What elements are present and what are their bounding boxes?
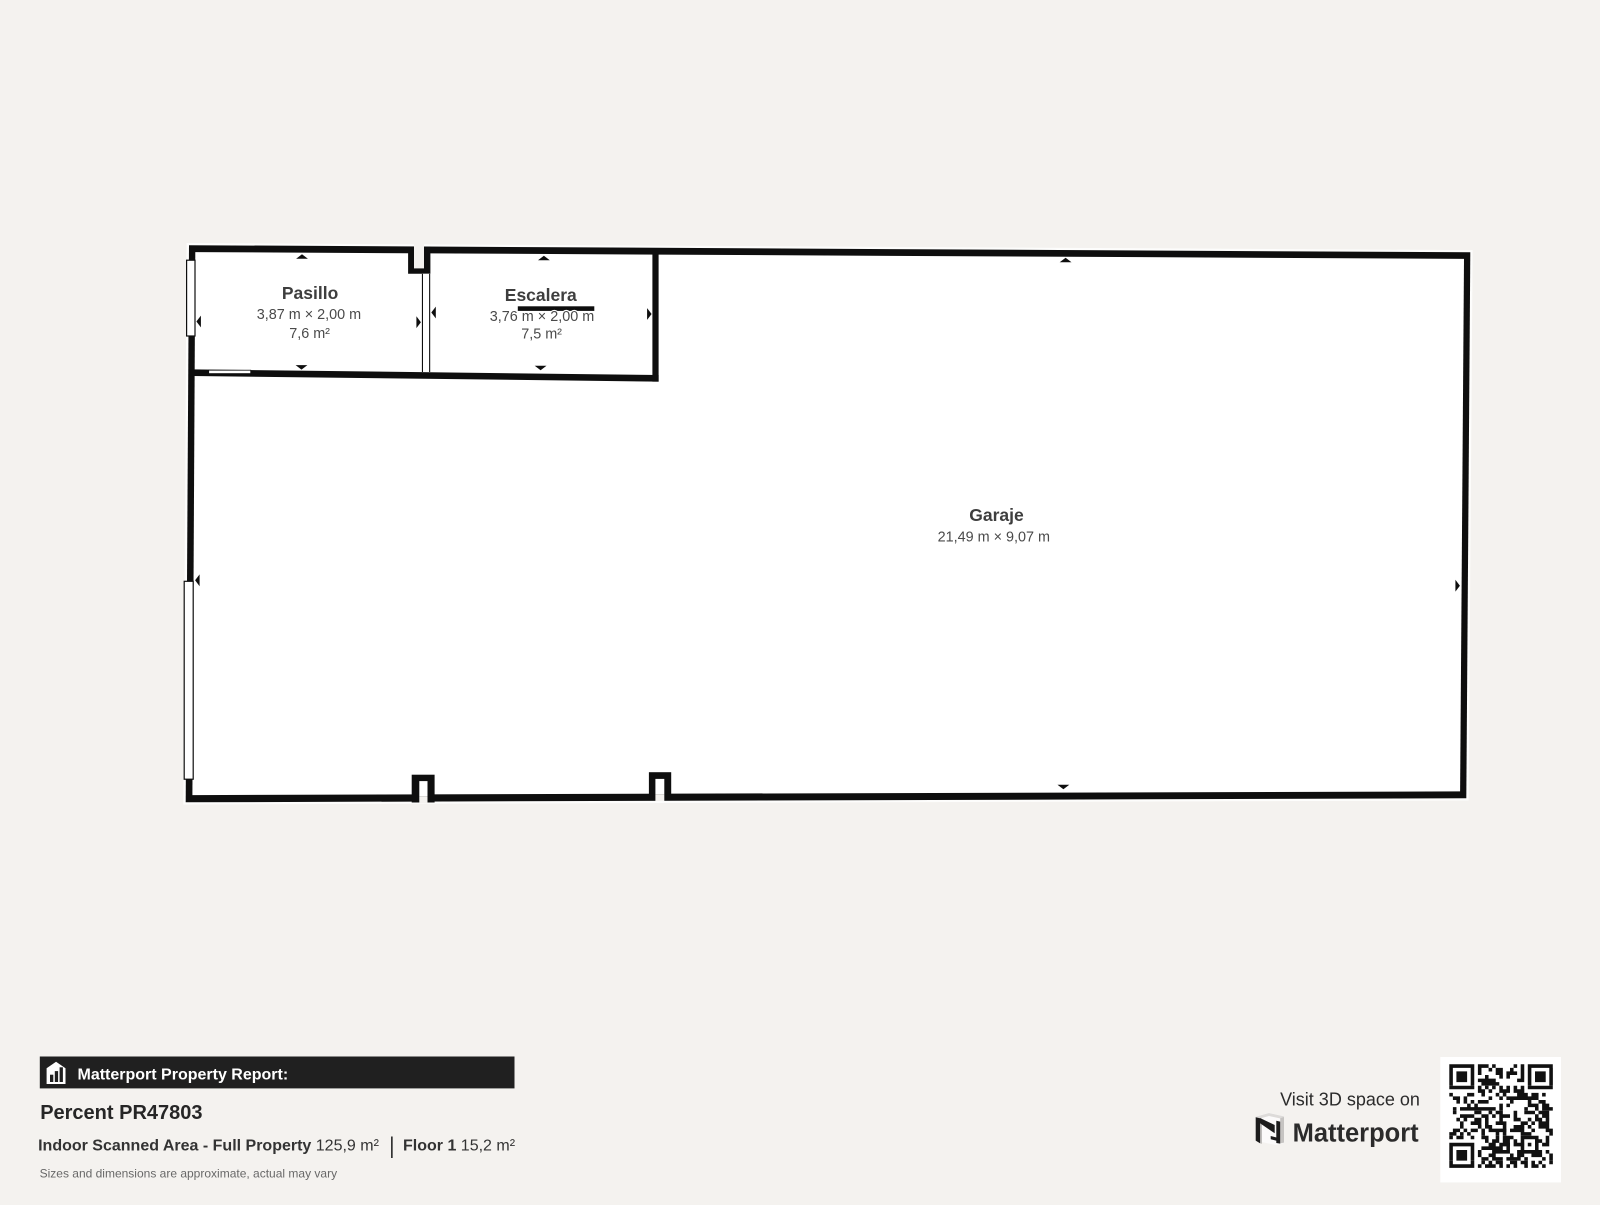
svg-text:Escalera: Escalera — [505, 285, 577, 305]
svg-text:Matterport: Matterport — [1293, 1120, 1420, 1148]
svg-text:Percent PR47803: Percent PR47803 — [40, 1102, 202, 1124]
svg-text:Indoor Scanned Area - Full Pro: Indoor Scanned Area - Full Property 125,… — [38, 1138, 379, 1155]
svg-text:Sizes and dimensions are appro: Sizes and dimensions are approximate, ac… — [40, 1166, 337, 1180]
svg-text:Garaje: Garaje — [969, 505, 1024, 525]
svg-text:Visit 3D space on: Visit 3D space on — [1280, 1090, 1420, 1110]
svg-text:21,49 m × 9,07 m: 21,49 m × 9,07 m — [938, 529, 1050, 545]
svg-text:Pasillo: Pasillo — [282, 283, 338, 303]
svg-text:7,6 m²: 7,6 m² — [289, 326, 330, 342]
svg-text:7,5 m²: 7,5 m² — [521, 327, 562, 343]
svg-text:Floor 1 15,2 m²: Floor 1 15,2 m² — [403, 1138, 516, 1155]
svg-text:3,87 m × 2,00 m: 3,87 m × 2,00 m — [257, 307, 361, 323]
svg-text:3,76 m × 2,00 m: 3,76 m × 2,00 m — [490, 309, 594, 325]
svg-text:Matterport Property Report:: Matterport Property Report: — [78, 1067, 289, 1084]
